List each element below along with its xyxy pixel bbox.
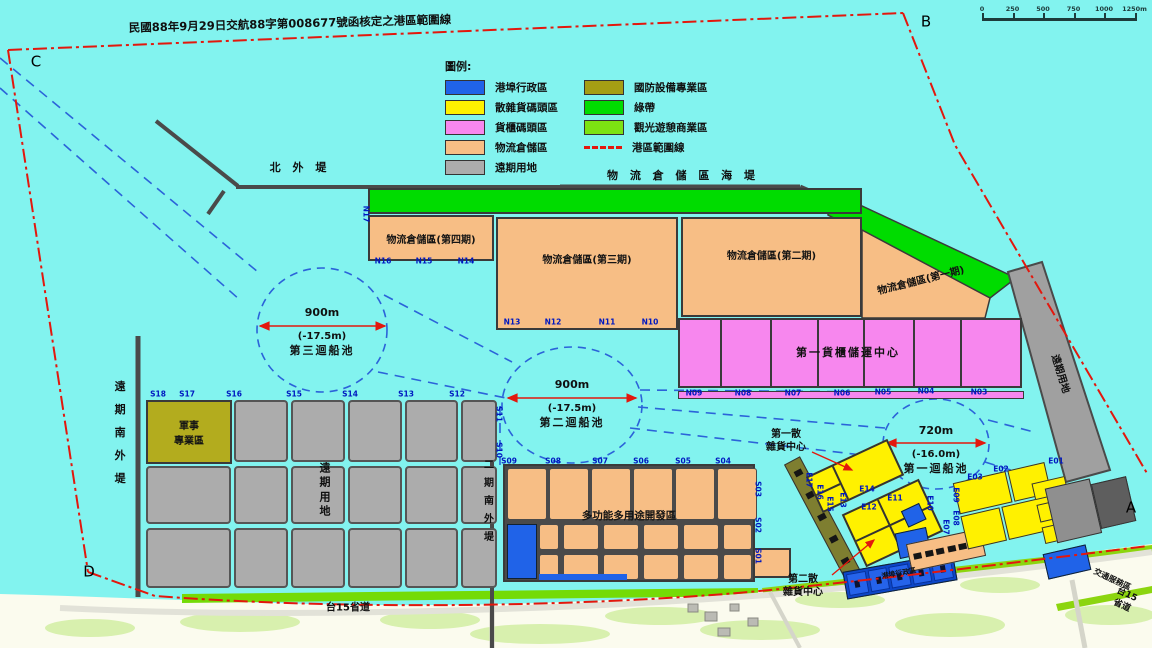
berth-label-s09: S09	[501, 457, 517, 466]
berth-label-s04: S04	[715, 457, 731, 466]
berth-label-e15: E15	[826, 496, 835, 512]
corner-label: C	[31, 52, 41, 72]
berth-label-s11: S11	[495, 406, 504, 422]
boundary-east	[903, 13, 1148, 475]
scale-bar-tick-label: 750	[1067, 5, 1081, 13]
corner-label: D	[83, 562, 95, 582]
berth-label-n13: N13	[504, 318, 521, 327]
berth-label-e13: E13	[839, 492, 848, 508]
legend-item-label: 貨櫃碼頭區	[495, 120, 548, 135]
scale-bar-tick	[1013, 13, 1015, 21]
legend-item-label: 綠帶	[634, 100, 655, 115]
berth-label-n05: N05	[875, 388, 892, 397]
berth-label-s07: S07	[592, 457, 608, 466]
scale-bar-tick-label: 250	[1006, 5, 1020, 13]
basin-3-depth: (-17.5m)	[298, 331, 346, 342]
corner-label: B	[921, 12, 931, 32]
north-breakwater-label: 北 外 堤	[270, 161, 331, 175]
legend-color-swatch	[584, 80, 624, 95]
berth-label-n09: N09	[686, 389, 703, 398]
legend-color-swatch	[445, 120, 485, 135]
legend-item-label: 國防設備專業區	[634, 80, 708, 95]
berth-label-n12: N12	[545, 318, 562, 327]
legend-color-swatch	[445, 160, 485, 175]
boundary-west	[8, 50, 88, 572]
legend: 圖例: 港埠行政區散雜貨碼頭區貨櫃碼頭區物流倉儲區遠期用地 國防設備專業區綠帶觀…	[445, 58, 775, 174]
berth-label-e09: E09	[952, 487, 961, 503]
legend-item: 港區範圍線	[584, 140, 708, 154]
scale-bar-tick-label: 500	[1036, 5, 1050, 13]
berth-label-e03: E03	[967, 473, 983, 482]
berth-label-n14: N14	[458, 257, 475, 266]
legend-item-label: 港埠行政區	[495, 80, 548, 95]
legend-item-label: 物流倉儲區	[495, 140, 548, 155]
berth-label-n07: N07	[785, 389, 802, 398]
legend-item: 觀光遊憩商業區	[584, 120, 708, 134]
berth-label-n04: N04	[918, 387, 935, 396]
berth-label-n11: N11	[599, 318, 616, 327]
legend-item: 遠期用地	[445, 160, 558, 174]
scale-bar-tick	[1135, 13, 1137, 21]
berth-label-n17: N17	[362, 206, 371, 223]
scale-bar-line	[982, 18, 1135, 21]
boundary-shore	[88, 546, 1148, 605]
legend-dash-swatch	[584, 146, 622, 149]
basin-1-depth: (-16.0m)	[912, 449, 960, 460]
basin-2-depth: (-17.5m)	[548, 403, 596, 414]
berth-label-s13: S13	[398, 390, 414, 399]
berth-label-n06: N06	[834, 389, 851, 398]
berth-label-s01: S01	[754, 548, 763, 564]
berth-label-e01: E01	[1048, 457, 1064, 466]
berth-label-e14: E14	[859, 485, 875, 494]
berth-label-e12: E12	[861, 503, 877, 512]
bulk-cargo-center-2-label: 第二散 雜貨中心	[783, 573, 823, 599]
turning-basin-2: 900m (-17.5m) 第二迴船池	[540, 378, 605, 430]
scale-bar-tick	[1074, 13, 1076, 21]
berth-label-e10: E10	[926, 495, 935, 511]
berth-label-e11: E11	[887, 494, 903, 503]
legend-item: 港埠行政區	[445, 80, 558, 94]
berth-label-s05: S05	[675, 457, 691, 466]
berth-label-e16: E16	[816, 484, 825, 500]
legend-color-swatch	[584, 120, 624, 135]
legend-color-swatch	[584, 100, 624, 115]
basin-2-diameter: 900m	[555, 378, 589, 391]
turning-basin-1: 720m (-16.0m) 第一迴船池	[904, 424, 969, 476]
legend-item-label: 港區範圍線	[632, 140, 685, 155]
turning-basin-3: 900m (-17.5m) 第三迴船池	[290, 306, 355, 358]
longterm-south-breakwater-label: 遠期南外堤	[112, 381, 126, 496]
berth-label-s02: S02	[754, 517, 763, 533]
basin-2-name: 第二迴船池	[540, 414, 605, 430]
berth-label-e02: E02	[993, 465, 1009, 474]
legend-color-swatch	[445, 100, 485, 115]
legend-item: 綠帶	[584, 100, 708, 114]
scale-bar-tick-label: 0	[980, 5, 985, 13]
berth-label-s03: S03	[754, 481, 763, 497]
container-center-label: 第一貨櫃儲運中心	[796, 346, 900, 360]
legend-item: 貨櫃碼頭區	[445, 120, 558, 134]
legend-item: 物流倉儲區	[445, 140, 558, 154]
basin-1-diameter: 720m	[919, 424, 953, 437]
corner-label: A	[1126, 498, 1136, 518]
legend-color-swatch	[445, 140, 485, 155]
berth-label-s16: S16	[226, 390, 242, 399]
berth-label-s14: S14	[342, 390, 358, 399]
scale-bar: 025050075010001250m	[982, 5, 1142, 27]
legend-item: 散雜貨碼頭區	[445, 100, 558, 114]
highway-15-label: 台15省道	[326, 602, 370, 615]
bulk-cargo-center-1-label: 第一散 雜貨中心	[766, 428, 806, 454]
berth-label-n10: N10	[642, 318, 659, 327]
scale-bar-tick	[1043, 13, 1045, 21]
legend-color-swatch	[445, 80, 485, 95]
berth-label-e17: E17	[805, 472, 814, 488]
basin-1-name: 第一迴船池	[904, 460, 969, 476]
berth-label-e08: E08	[952, 510, 961, 526]
phase2-south-breakwater-label: 二期南外堤	[481, 459, 494, 549]
berth-label-s12: S12	[449, 390, 465, 399]
berth-label-s15: S15	[286, 390, 302, 399]
leader-arrows	[812, 452, 874, 575]
legend-items-right: 國防設備專業區綠帶觀光遊憩商業區港區範圍線	[584, 80, 708, 174]
berth-label-e07: E07	[942, 519, 951, 535]
berth-label-s06: S06	[633, 457, 649, 466]
legend-item-label: 散雜貨碼頭區	[495, 100, 558, 115]
basin-3-diameter: 900m	[305, 306, 339, 319]
scale-bar-tick	[1104, 13, 1106, 21]
berth-label-n03: N03	[971, 388, 988, 397]
berth-label-n16: N16	[375, 257, 392, 266]
legend-item-label: 觀光遊憩商業區	[634, 120, 708, 135]
scale-bar-tick-label: 1000	[1095, 5, 1113, 13]
berth-label-s08: S08	[545, 457, 561, 466]
logistics-seawall-label: 物 流 倉 儲 區 海 堤	[607, 169, 759, 183]
berth-label-s17: S17	[179, 390, 195, 399]
basin-3-name: 第三迴船池	[290, 342, 355, 358]
scale-bar-tick	[982, 13, 984, 21]
scale-bar-tick-label: 1250m	[1122, 5, 1147, 13]
berth-label-n08: N08	[735, 389, 752, 398]
port-plan-map: 物流倉儲區(第四期) 物流倉儲區(第三期) 物流倉儲區(第二期) 軍事 專業區 …	[0, 0, 1152, 648]
legend-items-left: 港埠行政區散雜貨碼頭區貨櫃碼頭區物流倉儲區遠期用地	[445, 80, 558, 174]
legend-item: 國防設備專業區	[584, 80, 708, 94]
berth-label-s18: S18	[150, 390, 166, 399]
legend-item-label: 遠期用地	[495, 160, 537, 175]
berth-label-n15: N15	[416, 257, 433, 266]
legend-title: 圖例:	[445, 58, 775, 74]
